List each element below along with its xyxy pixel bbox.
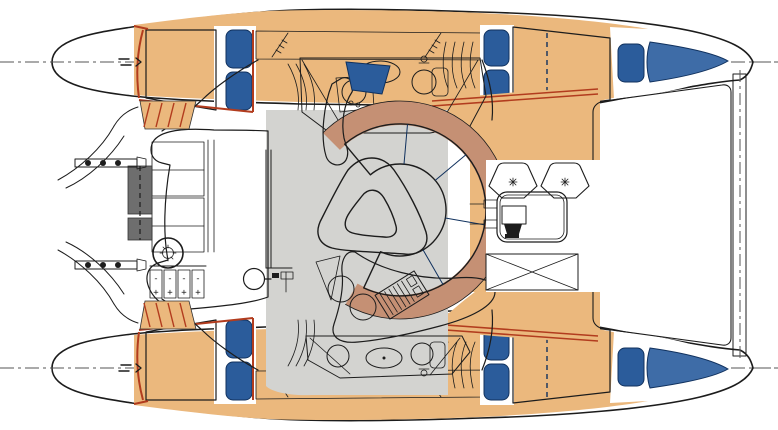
companionway-steps-bottom	[140, 301, 196, 329]
catamaran-deck-plan: - - - - + + + +	[0, 0, 778, 430]
throttle-plus-mark: +	[167, 288, 173, 298]
deck-plan-canvas: - - - - + + + +	[0, 0, 778, 430]
throttle-minus-mark: -	[167, 274, 172, 284]
transom-steps	[128, 166, 152, 240]
throttle-minus-mark: -	[153, 274, 158, 284]
companionway-steps-top	[140, 101, 196, 129]
throttle-plus-mark: +	[195, 288, 201, 298]
grill-base	[504, 224, 522, 234]
forward-cockpit-floor	[486, 160, 596, 292]
chaise-cushion	[346, 62, 390, 94]
throttle-minus-mark: -	[195, 274, 200, 284]
forward-cockpit	[470, 160, 596, 292]
star-mark-icon	[509, 178, 517, 186]
star-mark-icon	[561, 178, 569, 186]
throttle-plus-mark: +	[153, 288, 159, 298]
throttle-plus-mark: +	[181, 288, 187, 298]
throttle-minus-mark: -	[181, 274, 186, 284]
saloon-floor	[266, 110, 448, 395]
grill-foot	[505, 234, 519, 238]
sink-drain-dot	[383, 357, 386, 360]
